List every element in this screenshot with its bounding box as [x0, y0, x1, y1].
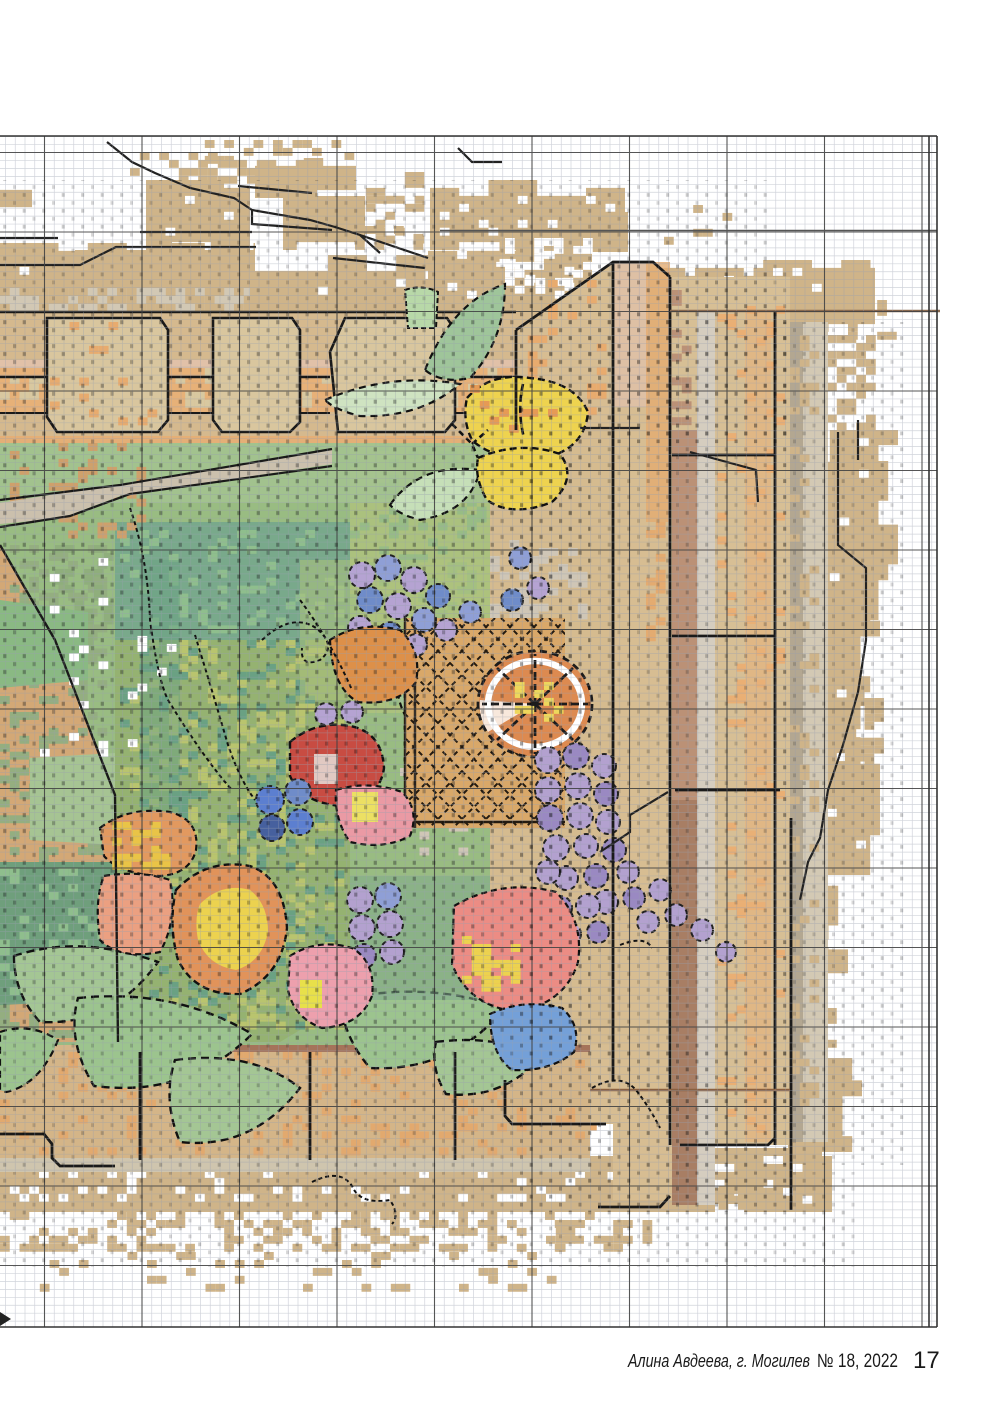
- svg-text:Алина Авдеева, г. Могилев: Алина Авдеева, г. Могилев: [627, 1351, 810, 1371]
- svg-text:17: 17: [913, 1347, 940, 1374]
- svg-text:№ 18, 2022: № 18, 2022: [817, 1351, 898, 1372]
